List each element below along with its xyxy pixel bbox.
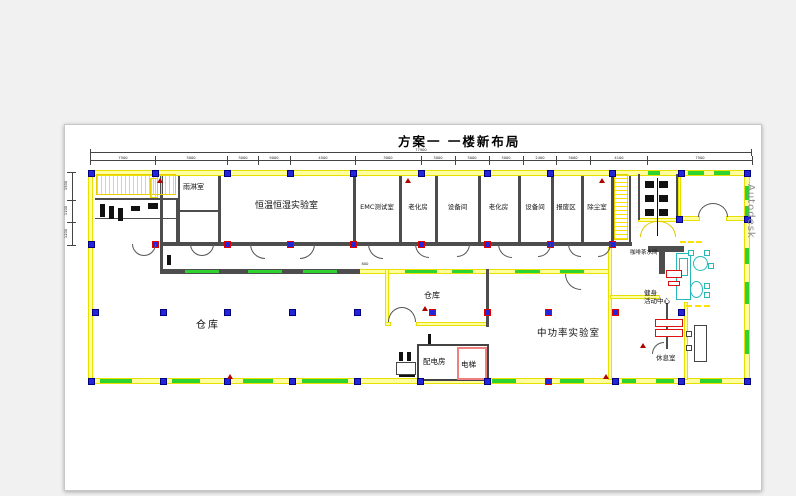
room-label-elevator: 电梯 bbox=[461, 361, 476, 369]
window-segment bbox=[745, 248, 749, 264]
column-marker bbox=[612, 309, 619, 316]
fixture bbox=[167, 255, 171, 265]
column-marker bbox=[354, 378, 361, 385]
stair-hatch bbox=[614, 174, 628, 240]
room-label-warehouse-main: 仓库 bbox=[196, 320, 220, 331]
wall-yellow bbox=[385, 322, 391, 326]
alert-marker bbox=[405, 178, 411, 183]
window-segment bbox=[243, 379, 273, 383]
column-marker bbox=[484, 309, 491, 316]
wall-partition bbox=[486, 269, 489, 327]
wall-partition bbox=[180, 210, 218, 212]
dimension-tick bbox=[90, 149, 91, 156]
room-label-rain: 雨淋室 bbox=[183, 184, 204, 192]
wall-yellow bbox=[416, 322, 488, 326]
column-marker bbox=[417, 378, 424, 385]
column-marker bbox=[484, 241, 491, 248]
fixture bbox=[399, 352, 403, 361]
window-segment bbox=[515, 270, 540, 273]
dimension-label: 3000 bbox=[432, 156, 444, 160]
column-marker bbox=[88, 170, 95, 177]
column-marker bbox=[92, 309, 99, 316]
fixture bbox=[645, 195, 654, 202]
dimension-label: 3000 bbox=[466, 156, 478, 160]
room-label-rest-room: 休息室 bbox=[656, 355, 676, 362]
window-segment bbox=[688, 171, 704, 175]
dimension-tick bbox=[355, 156, 356, 165]
column-marker bbox=[287, 241, 294, 248]
wall-partition bbox=[659, 252, 665, 274]
wall-partition bbox=[676, 174, 678, 220]
dimension-tick bbox=[590, 156, 591, 165]
alert-marker bbox=[603, 374, 609, 379]
wall-partition bbox=[176, 198, 178, 242]
fixture bbox=[407, 352, 411, 361]
window-segment bbox=[745, 282, 749, 304]
fixture bbox=[645, 181, 654, 188]
furniture-item bbox=[708, 263, 714, 269]
dimension-label: 4500 bbox=[317, 156, 329, 160]
column-marker bbox=[545, 309, 552, 316]
window-segment bbox=[745, 330, 749, 354]
column-marker bbox=[678, 309, 685, 316]
dimension-tick bbox=[258, 156, 259, 165]
furniture-item bbox=[704, 283, 710, 289]
dimension-label: 4100 bbox=[613, 156, 625, 160]
column-marker bbox=[287, 170, 294, 177]
dimension-tick bbox=[67, 200, 76, 201]
alert-marker bbox=[422, 306, 428, 311]
fixture bbox=[131, 206, 140, 211]
fixture bbox=[148, 203, 158, 209]
window-segment bbox=[656, 379, 674, 383]
fixture bbox=[659, 181, 668, 188]
window-segment bbox=[492, 379, 516, 383]
furniture-item bbox=[693, 256, 708, 271]
furniture-item bbox=[686, 331, 692, 337]
column-marker bbox=[350, 170, 357, 177]
viewport-background: 方案一 一楼新布局 雨淋室 恒温恒湿实验室 EMC测试室 老化房 设备间 老化房… bbox=[0, 0, 796, 496]
wall-partition bbox=[178, 176, 180, 242]
column-marker bbox=[224, 170, 231, 177]
window-segment bbox=[303, 270, 337, 273]
dimension-tick bbox=[67, 222, 76, 223]
dimension-tick bbox=[752, 156, 753, 165]
dimension-label: 3000 bbox=[185, 156, 197, 160]
dimension-label: 7500 bbox=[117, 156, 129, 160]
dimension-label: 1100 bbox=[64, 205, 68, 217]
room-label-aging-1: 老化房 bbox=[401, 204, 435, 211]
column-marker bbox=[612, 378, 619, 385]
column-marker bbox=[609, 170, 616, 177]
column-marker bbox=[744, 378, 751, 385]
window-segment bbox=[172, 379, 200, 383]
column-marker bbox=[160, 309, 167, 316]
room-label-scrap: 报废区 bbox=[551, 204, 581, 211]
dimension-label: 3000 bbox=[237, 156, 249, 160]
fixture bbox=[118, 208, 123, 221]
window-segment bbox=[248, 270, 282, 273]
room-label-mid-power-lab: 中功率实验室 bbox=[537, 329, 600, 339]
wall-partition bbox=[638, 174, 640, 220]
column-marker bbox=[744, 170, 751, 177]
dimension-tick bbox=[751, 149, 752, 156]
equipment-red bbox=[668, 281, 680, 286]
alert-marker bbox=[227, 374, 233, 379]
dimension-label: 3000 bbox=[567, 156, 579, 160]
dimension-tick bbox=[67, 172, 76, 173]
alert-marker bbox=[640, 343, 646, 348]
dimension-tick bbox=[647, 156, 648, 165]
wall-partition bbox=[629, 176, 631, 242]
window-segment bbox=[700, 379, 722, 383]
wall-yellow bbox=[680, 216, 700, 221]
dimension-tick bbox=[523, 156, 524, 165]
fixture bbox=[100, 204, 105, 217]
wall-partition bbox=[95, 198, 179, 200]
dimension-label: 7500 bbox=[694, 156, 706, 160]
dimension-tick bbox=[67, 245, 76, 246]
dimension-overall: 77900 bbox=[415, 148, 427, 152]
dimension-tick bbox=[421, 156, 422, 165]
furniture-item bbox=[686, 345, 692, 351]
column-marker bbox=[545, 378, 552, 385]
wall-partition bbox=[95, 218, 179, 219]
dimension-tick bbox=[155, 156, 156, 165]
room-label-warehouse-small: 仓库 bbox=[424, 292, 440, 301]
column-marker bbox=[88, 241, 95, 248]
column-marker bbox=[484, 378, 491, 385]
furniture-item bbox=[694, 325, 707, 362]
dimension-tick bbox=[227, 156, 228, 165]
dashed-guide bbox=[680, 241, 702, 243]
column-marker bbox=[289, 378, 296, 385]
window-segment bbox=[100, 379, 132, 383]
window-segment bbox=[560, 379, 584, 383]
alert-marker bbox=[157, 178, 163, 183]
room-label-aging-2: 老化房 bbox=[479, 204, 518, 211]
dimension-misc: 800 bbox=[359, 262, 371, 266]
room-label-equipment-1: 设备间 bbox=[437, 204, 478, 211]
wall-partition bbox=[160, 242, 163, 274]
room-label-power-distribution: 配电房 bbox=[423, 358, 446, 366]
column-marker bbox=[429, 309, 436, 316]
wall-yellow bbox=[88, 170, 93, 384]
column-marker bbox=[676, 216, 683, 223]
dimension-label: 1500 bbox=[64, 180, 68, 192]
fixture bbox=[657, 178, 658, 236]
alert-marker bbox=[599, 178, 605, 183]
room-label-fitness-center: 健身 活动中心 bbox=[644, 289, 670, 305]
furniture-item bbox=[688, 250, 694, 256]
window-segment bbox=[330, 379, 348, 383]
stair-hatch bbox=[96, 174, 176, 195]
column-marker bbox=[224, 309, 231, 316]
fixture bbox=[109, 206, 114, 219]
room-label-equipment-2: 设备间 bbox=[519, 204, 551, 211]
furniture-item bbox=[690, 281, 703, 298]
dimension-label: 9000 bbox=[268, 156, 280, 160]
column-marker bbox=[152, 170, 159, 177]
transformer-outline bbox=[396, 362, 416, 375]
dimension-label: 3000 bbox=[382, 156, 394, 160]
dashed-guide bbox=[686, 305, 710, 307]
window-segment bbox=[648, 171, 660, 175]
window-segment bbox=[185, 270, 219, 273]
dimension-tick bbox=[290, 156, 291, 165]
room-label-emc-lab: EMC测试室 bbox=[355, 204, 399, 211]
dimension-line bbox=[72, 172, 73, 245]
room-label-coffee-pantry: 咖啡茶水间 bbox=[630, 250, 658, 256]
dimension-tick bbox=[90, 156, 91, 165]
column-marker bbox=[224, 241, 231, 248]
room-label-humidity-lab: 恒温恒湿实验室 bbox=[220, 202, 353, 212]
dimension-tick bbox=[556, 156, 557, 165]
column-marker bbox=[354, 309, 361, 316]
fixture bbox=[659, 195, 668, 202]
equipment-red bbox=[666, 270, 682, 278]
room-label-dust: 除尘室 bbox=[582, 204, 612, 211]
column-marker bbox=[88, 378, 95, 385]
fixture bbox=[645, 209, 654, 216]
dimension-tick bbox=[455, 156, 456, 165]
dimension-tick bbox=[489, 156, 490, 165]
equipment-red bbox=[655, 329, 683, 337]
column-marker bbox=[678, 170, 685, 177]
column-marker bbox=[484, 170, 491, 177]
window-segment bbox=[452, 270, 473, 273]
window-segment bbox=[560, 270, 584, 273]
dimension-line bbox=[90, 152, 752, 153]
window-segment bbox=[714, 171, 730, 175]
fixture bbox=[428, 334, 431, 344]
column-marker bbox=[289, 309, 296, 316]
column-marker bbox=[160, 378, 167, 385]
column-marker bbox=[224, 378, 231, 385]
dimension-label: 2400 bbox=[534, 156, 546, 160]
fixture bbox=[659, 209, 668, 216]
window-segment bbox=[405, 270, 437, 273]
column-marker bbox=[418, 170, 425, 177]
furniture-item bbox=[704, 250, 710, 256]
column-marker bbox=[350, 241, 357, 248]
wall-yellow bbox=[638, 218, 678, 222]
dimension-label: 3000 bbox=[500, 156, 512, 160]
dimension-label: 1200 bbox=[64, 227, 68, 239]
wall-yellow bbox=[678, 173, 681, 219]
window-segment bbox=[302, 379, 330, 383]
equipment-red bbox=[655, 319, 683, 327]
window-segment bbox=[622, 379, 636, 383]
column-marker bbox=[547, 170, 554, 177]
column-marker bbox=[678, 378, 685, 385]
autodesk-watermark: Autodesk bbox=[745, 184, 756, 239]
furniture-item bbox=[704, 292, 710, 298]
